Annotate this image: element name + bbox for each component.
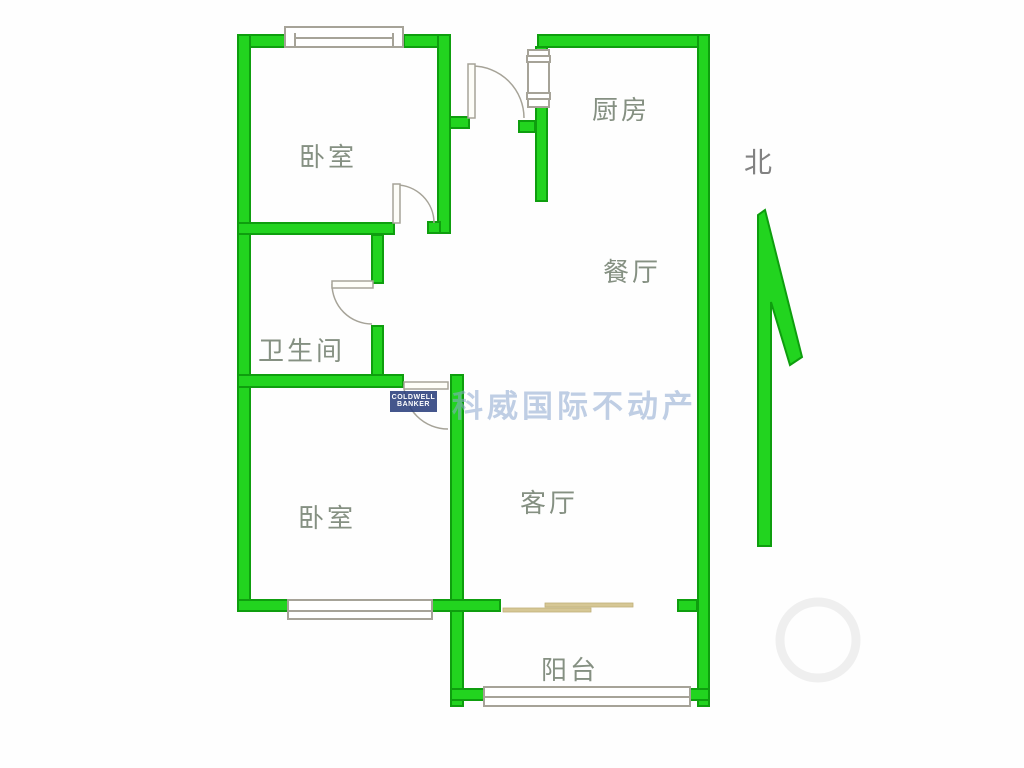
floor-plan: 卧室 厨房 餐厅 卫生间 卧室 客厅 阳台 北 COLDWELL BANKER …	[0, 0, 1024, 768]
north-arrow-icon	[758, 210, 802, 546]
ghost-watermark-icon	[780, 602, 856, 678]
window-kitchen	[527, 50, 550, 107]
room-label-balcony: 阳台	[541, 650, 599, 687]
room-label-bathroom: 卫生间	[258, 331, 345, 368]
room-label-dining: 餐厅	[603, 252, 661, 289]
window-balcony	[484, 687, 690, 706]
north-label: 北	[744, 141, 772, 181]
door-entrance	[468, 64, 524, 118]
watermark-logo: COLDWELL BANKER	[390, 391, 437, 412]
sliding-door-balcony	[503, 603, 633, 612]
door-bedroom-top	[393, 184, 434, 223]
room-label-bedroom-top: 卧室	[299, 137, 357, 174]
watermark-logo-line2: BANKER	[390, 401, 437, 408]
room-label-bedroom-bottom: 卧室	[298, 498, 356, 535]
door-bathroom	[332, 281, 373, 324]
window-bedroom-top	[285, 27, 403, 47]
room-label-kitchen: 厨房	[592, 90, 650, 127]
window-bedroom-bottom	[288, 600, 432, 619]
watermark-brand-text: 科威国际不动产	[452, 381, 697, 426]
room-label-living: 客厅	[520, 483, 578, 520]
watermark-logo-line1: COLDWELL	[390, 394, 437, 401]
